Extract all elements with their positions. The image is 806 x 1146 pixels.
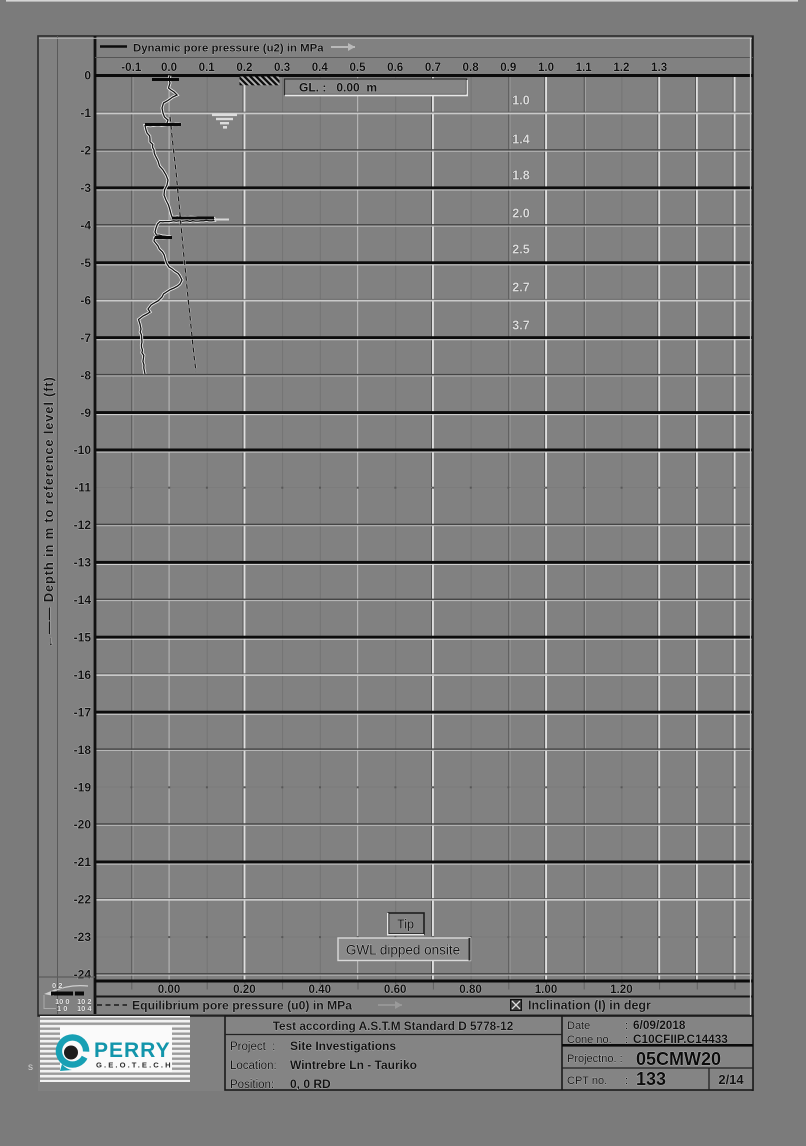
svg-text:-22: -22 xyxy=(74,893,92,907)
svg-text:0.0: 0.0 xyxy=(161,61,177,74)
svg-text:10 4: 10 4 xyxy=(77,1004,92,1013)
svg-text::: : xyxy=(625,1034,628,1046)
svg-text:0.60: 0.60 xyxy=(384,983,407,996)
svg-text:1.0: 1.0 xyxy=(512,94,529,108)
svg-text:-3: -3 xyxy=(80,181,91,195)
svg-text:-24: -24 xyxy=(74,968,92,982)
svg-text:0.8: 0.8 xyxy=(463,61,480,74)
svg-text:0.7: 0.7 xyxy=(425,61,441,74)
svg-text:1.3: 1.3 xyxy=(651,61,668,74)
svg-text:Cone no.: Cone no. xyxy=(567,1034,612,1046)
svg-text:Location:: Location: xyxy=(230,1060,277,1072)
svg-text:0, 0 RD: 0, 0 RD xyxy=(290,1077,331,1091)
svg-text:Dynamic pore pressure (u2) in: Dynamic pore pressure (u2) in MPa xyxy=(133,43,324,55)
svg-text:-2: -2 xyxy=(80,144,91,158)
svg-text:Tip: Tip xyxy=(397,918,414,932)
svg-text:05CMW20: 05CMW20 xyxy=(636,1049,721,1069)
svg-text:0.00: 0.00 xyxy=(158,983,181,996)
svg-text:-10: -10 xyxy=(74,443,92,457)
svg-text:1.00: 1.00 xyxy=(535,983,558,996)
svg-text:-6: -6 xyxy=(80,293,91,307)
svg-text:133: 133 xyxy=(636,1069,666,1089)
svg-text:1.2: 1.2 xyxy=(613,61,629,74)
svg-text:G.E.O.T.E.C.H: G.E.O.T.E.C.H xyxy=(96,1061,173,1070)
svg-text:-14: -14 xyxy=(74,593,92,607)
svg-text:-4: -4 xyxy=(80,219,91,233)
svg-text:s: s xyxy=(28,1062,33,1073)
svg-text:PERRY: PERRY xyxy=(94,1039,171,1062)
svg-text:0.1: 0.1 xyxy=(199,61,216,74)
svg-text:0.6: 0.6 xyxy=(387,61,404,74)
svg-text:1 0: 1 0 xyxy=(57,1004,67,1013)
svg-text:-17: -17 xyxy=(74,705,92,719)
svg-text:Test according A.S.T.M Standar: Test according A.S.T.M Standard D 5778-1… xyxy=(273,1019,514,1033)
svg-text:←—— Depth in m to reference l: ←—— Depth in m to reference level (ft) xyxy=(41,376,56,648)
svg-text:-23: -23 xyxy=(74,930,92,944)
svg-text:0.80: 0.80 xyxy=(459,983,482,996)
svg-text:C10CFIIP.C14433: C10CFIIP.C14433 xyxy=(633,1032,728,1046)
svg-text:Inclination (I) in degr: Inclination (I) in degr xyxy=(528,999,651,1013)
svg-text:-1: -1 xyxy=(80,106,91,120)
svg-text:Date: Date xyxy=(567,1020,590,1032)
svg-text:GL. : 0.00 m: GL. : 0.00 m xyxy=(299,81,377,95)
svg-text:-12: -12 xyxy=(74,518,92,532)
svg-text:0 2: 0 2 xyxy=(52,981,62,990)
svg-text:6/09/2018: 6/09/2018 xyxy=(633,1018,686,1032)
svg-text:-7: -7 xyxy=(80,331,91,345)
svg-text:-8: -8 xyxy=(80,368,91,382)
svg-text:2.0: 2.0 xyxy=(512,207,529,221)
svg-text:1.4: 1.4 xyxy=(512,133,529,147)
svg-text:Position:: Position: xyxy=(230,1079,274,1091)
svg-text:-19: -19 xyxy=(74,780,92,794)
svg-text:CPT no.: CPT no. xyxy=(567,1075,607,1087)
svg-text:2/14: 2/14 xyxy=(718,1072,744,1087)
svg-text::: : xyxy=(625,1020,628,1032)
svg-text:0.40: 0.40 xyxy=(309,983,332,996)
svg-text:-9: -9 xyxy=(80,406,91,420)
svg-text:0: 0 xyxy=(84,69,91,83)
svg-text:Wintrebre Ln - Tauriko: Wintrebre Ln - Tauriko xyxy=(290,1058,417,1072)
svg-text:0.4: 0.4 xyxy=(312,61,329,74)
svg-text:2.5: 2.5 xyxy=(512,243,529,257)
svg-text:-16: -16 xyxy=(74,668,92,682)
svg-text:1.8: 1.8 xyxy=(512,169,529,183)
svg-text:-21: -21 xyxy=(74,855,92,869)
svg-text:0.5: 0.5 xyxy=(349,61,366,74)
svg-text:-0.1: -0.1 xyxy=(121,61,142,74)
svg-text:0.3: 0.3 xyxy=(274,61,291,74)
svg-text:Equilibrium pore pressure (u0): Equilibrium pore pressure (u0) in MPa xyxy=(132,999,352,1013)
svg-text:-5: -5 xyxy=(80,256,91,270)
svg-text:1.0: 1.0 xyxy=(538,61,554,74)
svg-text:2.7: 2.7 xyxy=(512,281,529,295)
svg-text:Project :: Project : xyxy=(230,1041,275,1053)
svg-text:-20: -20 xyxy=(74,818,92,832)
svg-text:-13: -13 xyxy=(74,556,92,570)
svg-text:Projectno. :: Projectno. : xyxy=(567,1053,623,1065)
svg-text:1.20: 1.20 xyxy=(610,983,633,996)
svg-text:0.2: 0.2 xyxy=(236,61,252,74)
svg-text:-11: -11 xyxy=(74,481,91,495)
svg-text:-15: -15 xyxy=(74,630,92,644)
svg-text:1.1: 1.1 xyxy=(576,61,593,74)
svg-text:GWL dipped onsite: GWL dipped onsite xyxy=(346,943,460,958)
svg-text::: : xyxy=(625,1075,628,1087)
svg-text:Site Investigations: Site Investigations xyxy=(290,1039,396,1053)
svg-text:-18: -18 xyxy=(74,743,92,757)
svg-text:0.9: 0.9 xyxy=(500,61,517,74)
svg-text:3.7: 3.7 xyxy=(512,319,529,333)
svg-text:0.20: 0.20 xyxy=(233,983,256,996)
